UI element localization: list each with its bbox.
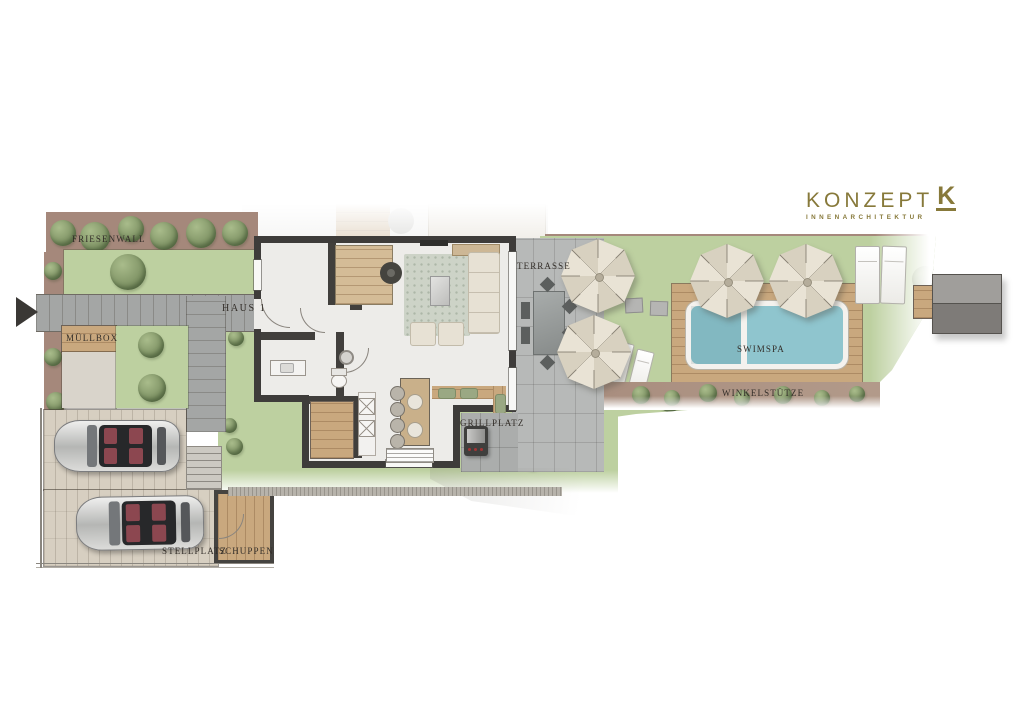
label-swimspa: SWIMSPA: [737, 344, 785, 354]
car-seat: [152, 504, 166, 521]
logo: KONZEPT K INNENARCHITEKTUR: [806, 186, 956, 221]
car-rear-window: [157, 427, 166, 465]
tree: [920, 336, 950, 366]
appliance: [358, 398, 375, 415]
label-grillplatz: GRILLPLATZ: [460, 418, 525, 428]
front-lawn-strip: [64, 250, 256, 296]
terrace-door: [509, 368, 516, 410]
stepping-stone: [650, 301, 669, 317]
tv: [420, 240, 448, 246]
car-cabin: [122, 500, 177, 545]
plate: [407, 394, 423, 410]
appliance: [358, 420, 375, 437]
entry-arrow-icon: [16, 297, 38, 327]
shower-head: [339, 350, 354, 365]
stool: [390, 402, 405, 417]
logo-k-mark: K: [936, 186, 956, 211]
parasol: [561, 239, 635, 313]
grill-knob: [480, 448, 483, 451]
car-seat: [104, 428, 118, 444]
parasol-canopy: [561, 239, 635, 313]
label-terrasse: TERRASSE: [517, 261, 571, 271]
exterior-steps: [186, 446, 222, 490]
label-haus: HAUS 1: [222, 303, 266, 314]
armchair: [410, 322, 436, 346]
garden-house-step: [914, 286, 932, 318]
side-lawn: [224, 322, 258, 408]
car-cabin: [99, 425, 152, 468]
label-schuppen: SCHUPPEN: [219, 546, 274, 556]
slope-fade: [604, 396, 880, 410]
bush: [186, 218, 216, 248]
garden-house: [932, 274, 1002, 334]
interior-wall: [261, 332, 315, 340]
bush: [44, 262, 62, 280]
grill-knob: [468, 448, 471, 451]
gravel-border: [228, 487, 562, 496]
ghost-fade: [242, 194, 548, 242]
bush: [150, 222, 178, 250]
car: [76, 495, 205, 551]
grill-lid: [467, 429, 485, 443]
bench: [521, 302, 530, 319]
grill: [464, 426, 488, 456]
muellbox-lawn: [116, 326, 188, 408]
sauna-benches: [311, 402, 353, 458]
window-west: [254, 260, 261, 290]
car: [54, 420, 180, 472]
car-seat: [126, 525, 140, 542]
bench-cushion: [438, 388, 456, 399]
parasol-canopy: [769, 244, 843, 318]
label-muellbox: MÜLLBOX: [66, 333, 118, 343]
toilet: [331, 374, 347, 388]
plate: [407, 422, 423, 438]
coffee-table: [430, 276, 450, 306]
stool: [390, 386, 405, 401]
stove-top: [387, 269, 395, 277]
washbasin: [280, 363, 294, 373]
kitchen-drawers: [386, 448, 434, 463]
car-rear-window: [181, 502, 191, 542]
bench: [521, 327, 530, 344]
stool: [390, 418, 405, 433]
property-line: [36, 567, 274, 568]
interior-wall: [328, 243, 336, 305]
car-seat: [126, 504, 140, 521]
bench-cushion: [460, 388, 478, 399]
bush: [138, 374, 166, 402]
bush: [228, 330, 244, 346]
label-winkelstuetze: WINKELSTÜTZE: [722, 388, 804, 398]
toilet-tank: [331, 368, 347, 376]
label-friesenwall: FRIESENWALL: [72, 234, 146, 244]
sun-lounger: [855, 246, 880, 304]
car-seat: [129, 448, 143, 464]
label-stellplatz: STELLPLATZ: [162, 546, 227, 556]
armchair: [438, 322, 464, 346]
parasol-canopy: [557, 315, 631, 389]
bench-cushion: [495, 394, 506, 414]
tree: [110, 254, 146, 290]
side-walkway: [186, 296, 226, 432]
logo-subtitle: INNENARCHITEKTUR: [806, 214, 956, 221]
car-seat: [104, 448, 118, 464]
bush: [222, 220, 248, 246]
grill-knob: [474, 448, 477, 451]
ghost-upper-unit: [242, 194, 548, 242]
car-windshield: [87, 425, 97, 467]
planting-strip-left: [44, 252, 64, 424]
car-seat: [152, 524, 166, 541]
sun-lounger: [880, 246, 907, 305]
muellbox-pad: [62, 352, 116, 408]
site-plan-canvas: FRIESENWALL HAUS 1 MÜLLBOX TERRASSE SWIM…: [0, 0, 1024, 724]
property-line: [36, 563, 274, 564]
house-shadow: [430, 468, 660, 528]
bush: [226, 438, 243, 455]
hedge-strip-left: [46, 212, 258, 254]
stool: [390, 434, 405, 449]
bush: [44, 348, 62, 366]
parasol: [690, 244, 764, 318]
window-terrace: [509, 252, 516, 350]
bush: [138, 332, 164, 358]
car-seat: [129, 428, 143, 444]
parasol-canopy: [690, 244, 764, 318]
parasol: [557, 315, 631, 389]
parasol: [769, 244, 843, 318]
sofa: [468, 252, 500, 334]
property-line: [40, 408, 42, 568]
car-windshield: [109, 502, 120, 545]
logo-brand-text: KONZEPT: [806, 190, 933, 211]
